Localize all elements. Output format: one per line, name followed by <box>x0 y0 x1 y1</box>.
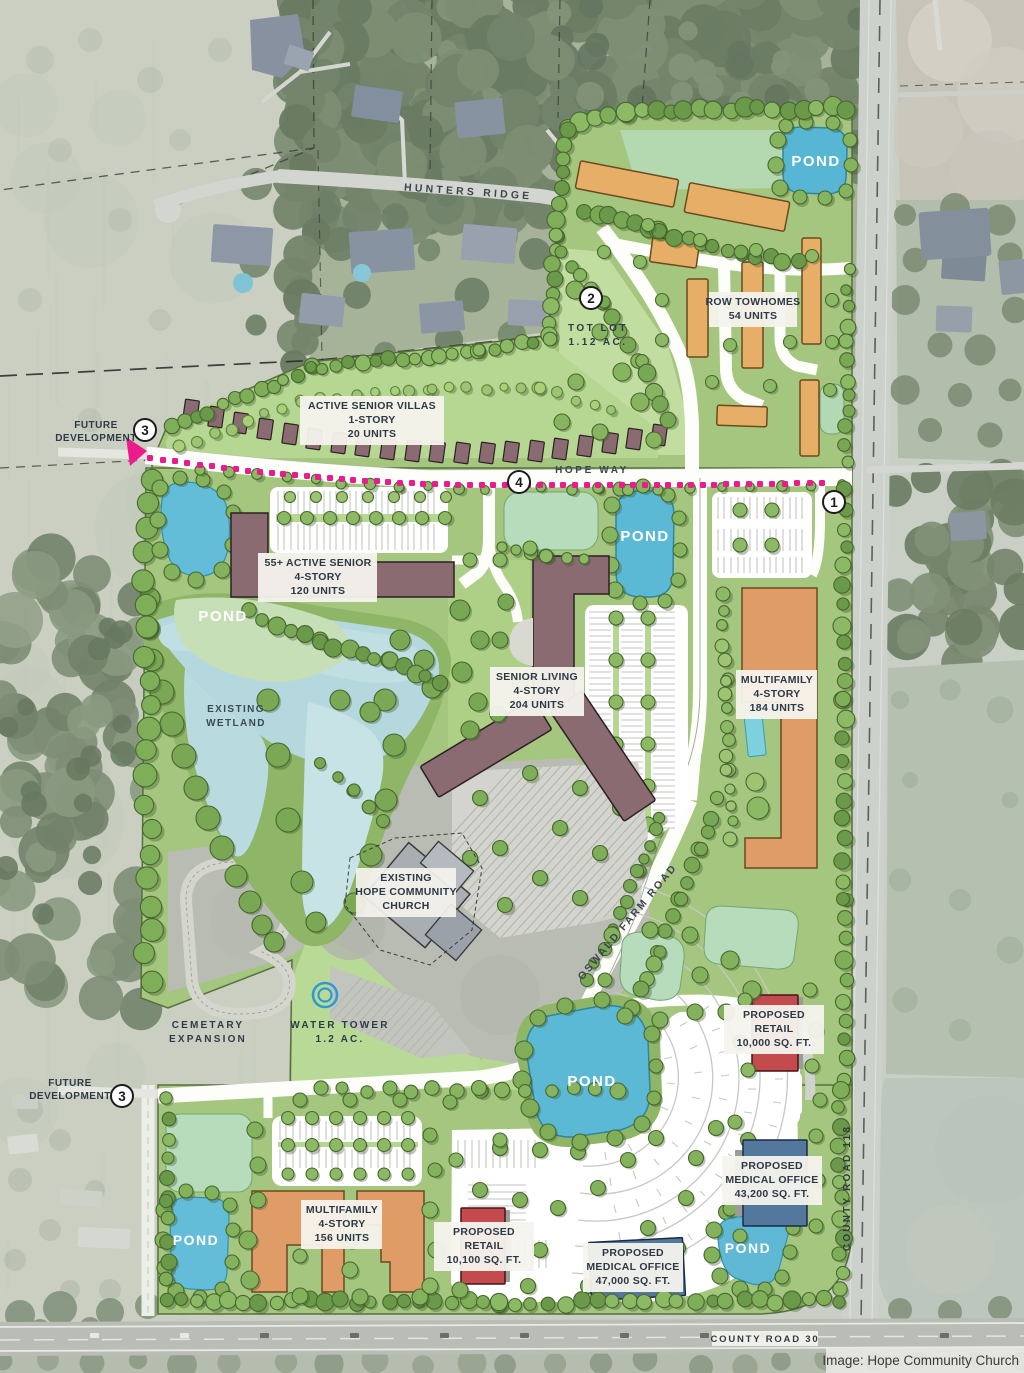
svg-text:120 UNITS: 120 UNITS <box>291 585 346 597</box>
svg-text:204 UNITS: 204 UNITS <box>510 699 565 711</box>
svg-text:ACTIVE SENIOR VILLAS: ACTIVE SENIOR VILLAS <box>308 400 436 412</box>
svg-text:10,100 SQ. FT.: 10,100 SQ. FT. <box>447 1254 522 1266</box>
svg-text:DEVELOPMENT: DEVELOPMENT <box>55 433 137 444</box>
svg-text:1: 1 <box>830 495 838 510</box>
svg-text:43,200 SQ. FT.: 43,200 SQ. FT. <box>735 1188 810 1200</box>
svg-text:TOT LOT: TOT LOT <box>568 323 628 334</box>
svg-text:4-STORY: 4-STORY <box>294 571 341 583</box>
svg-text:10,000 SQ. FT.: 10,000 SQ. FT. <box>737 1037 812 1049</box>
svg-text:ROW TOWHOMES: ROW TOWHOMES <box>706 296 801 308</box>
svg-text:4-STORY: 4-STORY <box>513 685 560 697</box>
svg-text:RETAIL: RETAIL <box>755 1023 794 1035</box>
svg-text:1.2 AC.: 1.2 AC. <box>316 1034 365 1045</box>
svg-text:POND: POND <box>791 153 840 170</box>
svg-text:POND: POND <box>725 1240 771 1256</box>
svg-text:184 UNITS: 184 UNITS <box>750 702 805 714</box>
svg-text:54 UNITS: 54 UNITS <box>729 310 778 322</box>
svg-text:2: 2 <box>587 291 595 306</box>
svg-text:1-STORY: 1-STORY <box>348 414 395 426</box>
svg-text:EXPANSION: EXPANSION <box>169 1034 247 1045</box>
svg-text:EXISTING: EXISTING <box>380 872 431 884</box>
svg-text:EXISTING: EXISTING <box>207 704 265 715</box>
svg-text:MULTIFAMILY: MULTIFAMILY <box>741 674 813 686</box>
svg-text:PROPOSED: PROPOSED <box>741 1160 803 1172</box>
svg-text:3: 3 <box>141 423 149 438</box>
svg-text:HOPE COMMUNITY: HOPE COMMUNITY <box>355 886 457 898</box>
svg-text:20 UNITS: 20 UNITS <box>348 428 397 440</box>
svg-text:4-STORY: 4-STORY <box>318 1218 365 1230</box>
svg-text:1.12 AC.: 1.12 AC. <box>568 337 627 348</box>
svg-text:CHURCH: CHURCH <box>382 900 429 912</box>
svg-text:MEDICAL OFFICE: MEDICAL OFFICE <box>725 1174 818 1186</box>
svg-text:DEVELOPMENT: DEVELOPMENT <box>29 1091 111 1102</box>
svg-text:SENIOR LIVING: SENIOR LIVING <box>496 671 578 683</box>
svg-text:RETAIL: RETAIL <box>465 1240 504 1252</box>
svg-text:MEDICAL OFFICE: MEDICAL OFFICE <box>586 1261 679 1273</box>
svg-text:POND: POND <box>567 1073 616 1090</box>
svg-text:Image: Hope Community Church: Image: Hope Community Church <box>822 1353 1019 1368</box>
svg-text:47,000 SQ. FT.: 47,000 SQ. FT. <box>596 1275 671 1287</box>
svg-text:WATER TOWER: WATER TOWER <box>290 1020 389 1031</box>
svg-text:55+ ACTIVE SENIOR: 55+ ACTIVE SENIOR <box>264 557 371 569</box>
svg-text:156 UNITS: 156 UNITS <box>315 1232 370 1244</box>
svg-text:POND: POND <box>173 1232 219 1248</box>
svg-text:PROPOSED: PROPOSED <box>453 1226 515 1238</box>
svg-text:FUTURE: FUTURE <box>74 420 118 431</box>
svg-text:PROPOSED: PROPOSED <box>743 1009 805 1021</box>
svg-text:MULTIFAMILY: MULTIFAMILY <box>306 1204 378 1216</box>
svg-text:WETLAND: WETLAND <box>206 718 266 729</box>
svg-text:POND: POND <box>198 608 247 625</box>
svg-text:COUNTY ROAD 30: COUNTY ROAD 30 <box>711 1334 820 1345</box>
svg-text:POND: POND <box>620 528 669 545</box>
svg-text:4-STORY: 4-STORY <box>753 688 800 700</box>
svg-text:4: 4 <box>515 475 523 490</box>
svg-text:CEMETARY: CEMETARY <box>172 1020 245 1031</box>
svg-text:HOPE WAY: HOPE WAY <box>555 465 629 476</box>
svg-text:FUTURE: FUTURE <box>48 1078 92 1089</box>
svg-text:PROPOSED: PROPOSED <box>602 1247 664 1259</box>
svg-text:3: 3 <box>118 1089 126 1104</box>
svg-text:COUNTY ROAD 118: COUNTY ROAD 118 <box>842 1125 853 1251</box>
